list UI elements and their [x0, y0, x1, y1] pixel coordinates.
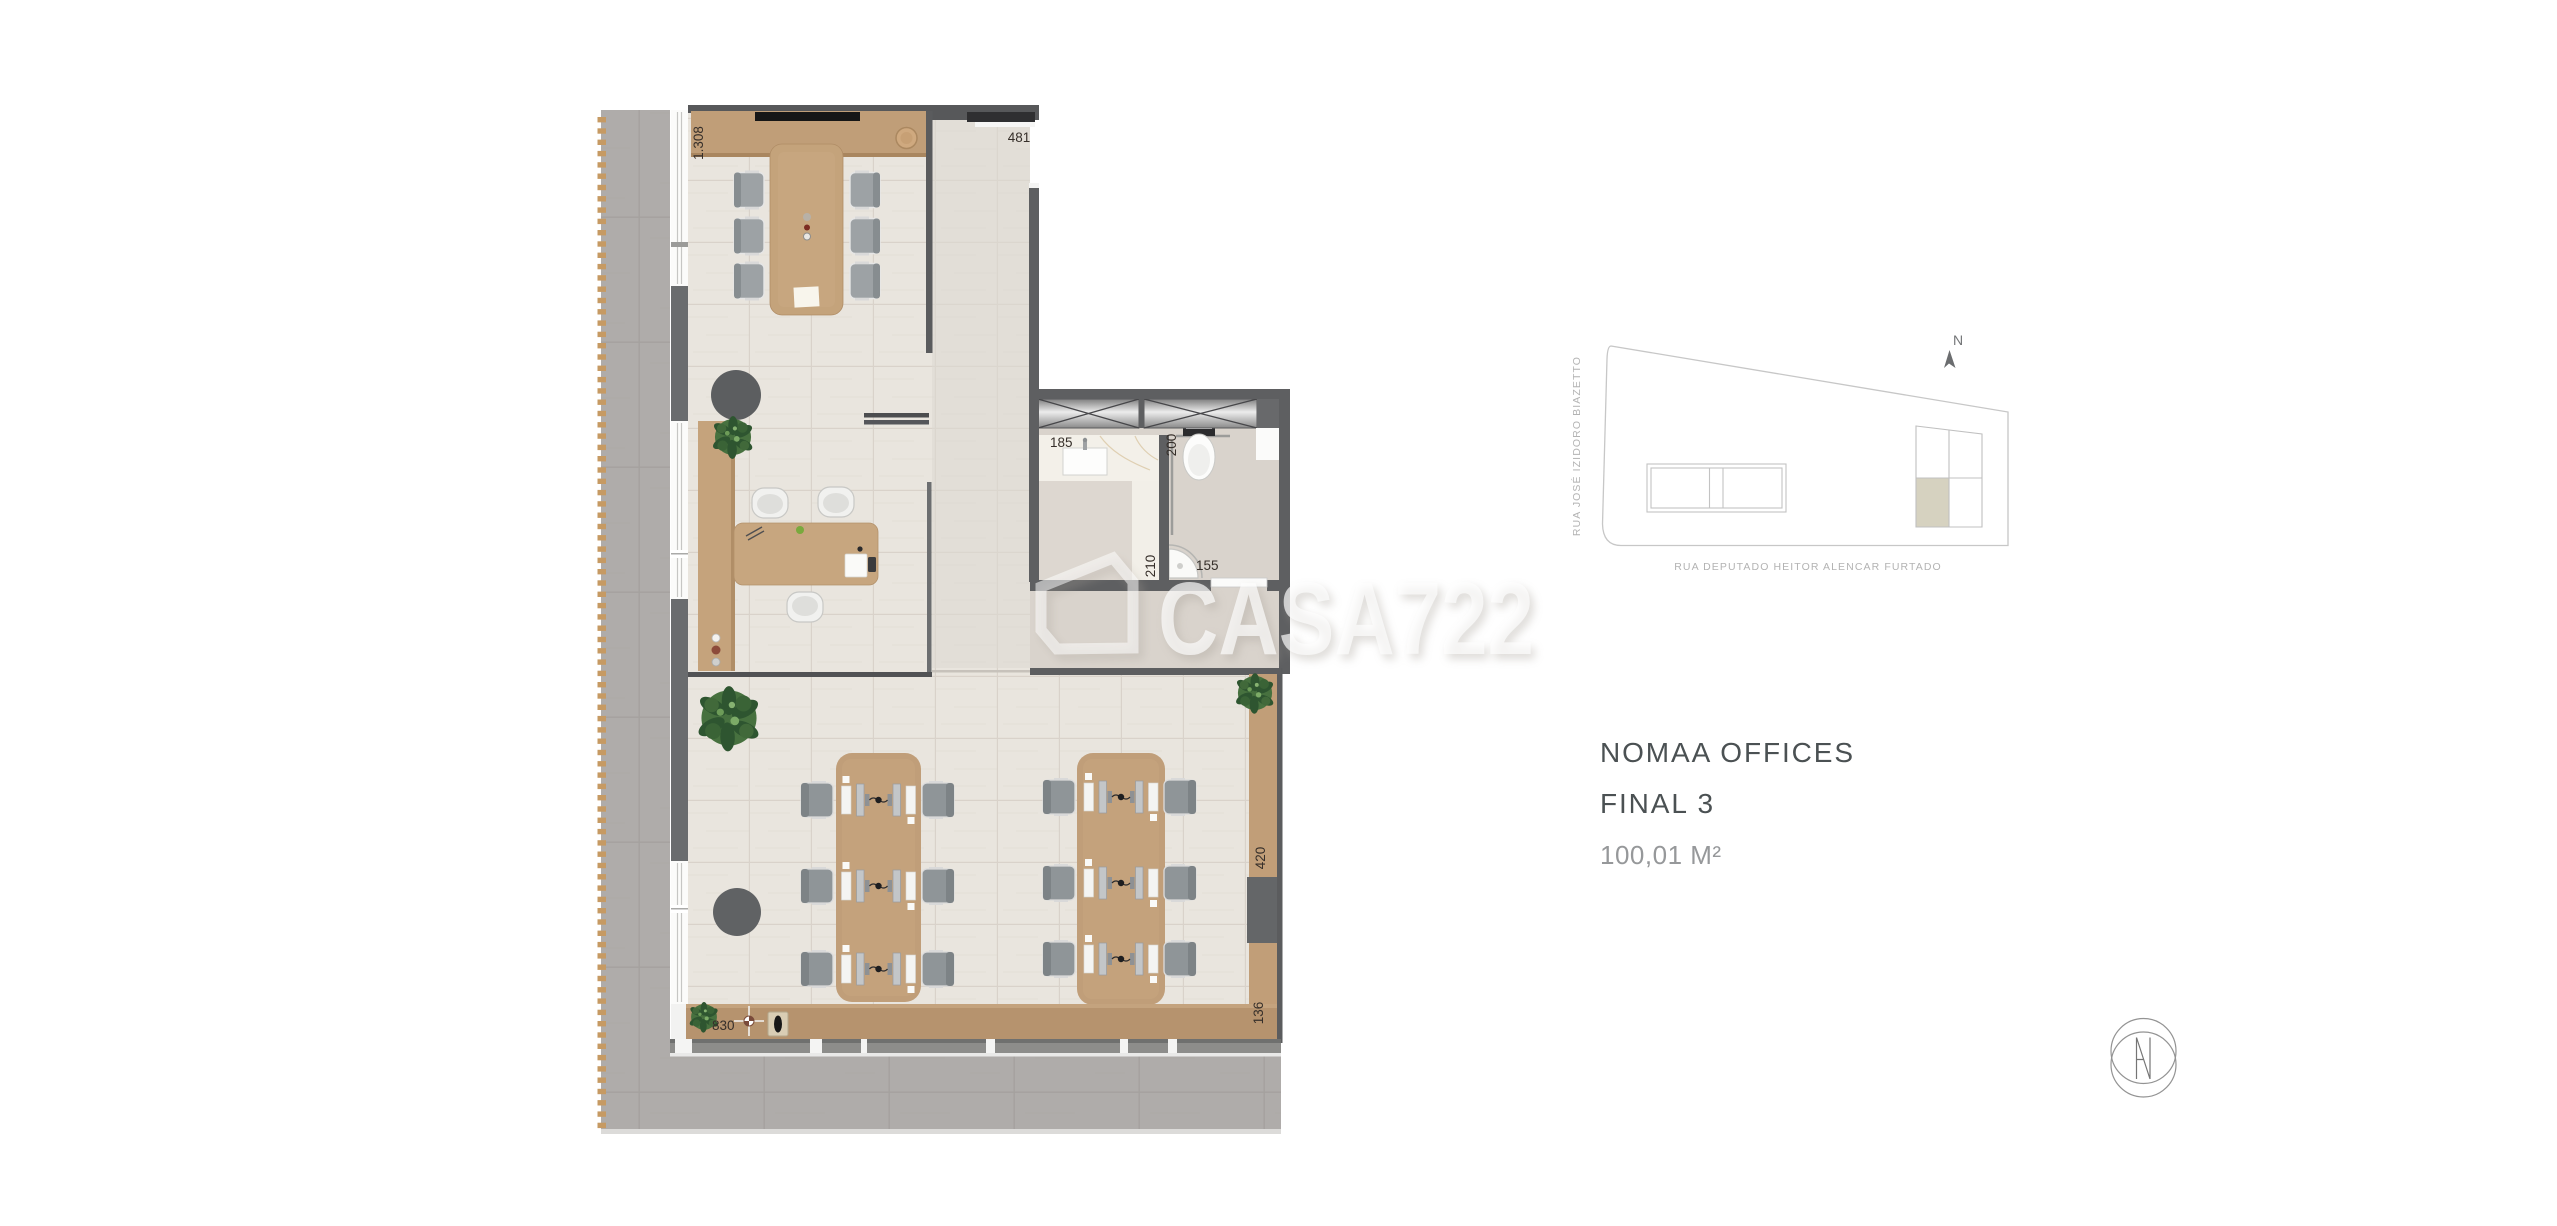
svg-text:210: 210 [1143, 555, 1158, 578]
svg-text:FINAL 3: FINAL 3 [1600, 788, 1715, 819]
svg-text:RUA JOSÉ IZIDORO BIAZETTO: RUA JOSÉ IZIDORO BIAZETTO [1570, 356, 1583, 536]
svg-text:185: 185 [1050, 435, 1073, 450]
svg-text:830: 830 [712, 1018, 735, 1033]
svg-text:100,01 M²: 100,01 M² [1600, 840, 1722, 870]
svg-text:N: N [1953, 332, 1963, 348]
svg-text:NOMAA OFFICES: NOMAA OFFICES [1600, 737, 1855, 768]
svg-text:136: 136 [1251, 1002, 1266, 1025]
svg-text:CASA722: CASA722 [1158, 561, 1534, 676]
svg-text:1.308: 1.308 [691, 126, 706, 160]
svg-text:RUA DEPUTADO HEITOR ALENCAR FU: RUA DEPUTADO HEITOR ALENCAR FURTADO [1674, 561, 1942, 573]
svg-text:481: 481 [1008, 130, 1031, 145]
svg-text:420: 420 [1253, 847, 1268, 870]
svg-text:200: 200 [1164, 434, 1179, 457]
